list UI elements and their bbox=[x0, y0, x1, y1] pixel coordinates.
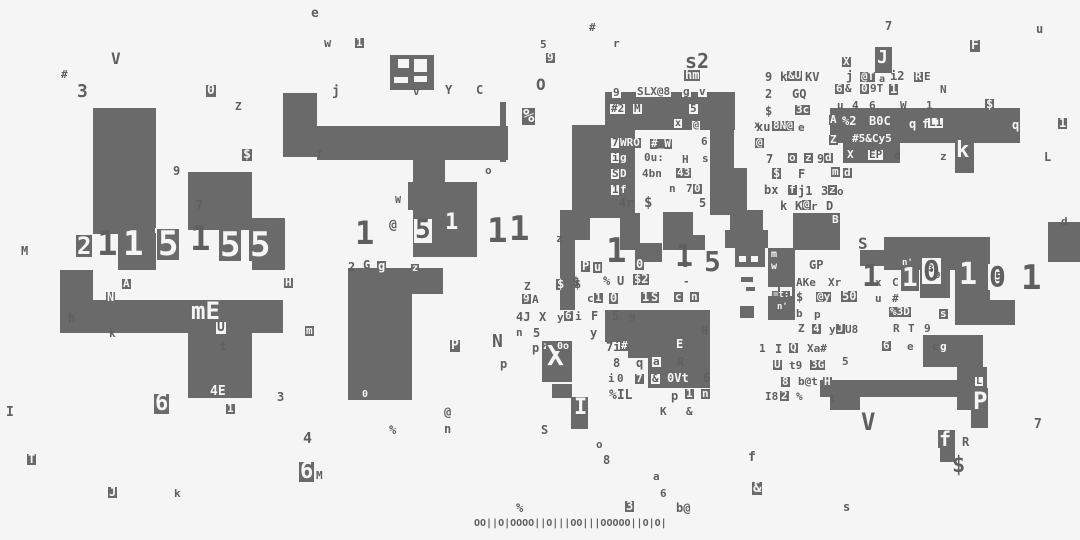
glyph: s bbox=[701, 154, 710, 164]
glyph: GQ bbox=[791, 89, 807, 100]
glyph: #_W bbox=[650, 139, 672, 149]
glyph: f bbox=[938, 430, 952, 448]
glyph: 1 bbox=[685, 389, 694, 399]
glyph: 0o bbox=[556, 342, 570, 351]
glyph: I8 bbox=[764, 392, 779, 402]
glyph: 9 bbox=[172, 166, 181, 177]
glyph: 7 bbox=[1033, 419, 1043, 431]
block bbox=[740, 306, 754, 318]
glyph: R bbox=[961, 437, 970, 448]
glyph: #5&Cy5 bbox=[851, 134, 893, 144]
glyph: 1 bbox=[641, 292, 650, 303]
glyph: j1 bbox=[797, 186, 813, 197]
glyph: R bbox=[892, 324, 901, 334]
glyph: g bbox=[939, 342, 948, 352]
glyph: n bbox=[443, 424, 452, 435]
glyph: Y bbox=[444, 85, 453, 96]
glyph: $ bbox=[764, 106, 773, 117]
glyph: 3 bbox=[76, 84, 89, 101]
glyph: # bbox=[60, 70, 69, 80]
glyph: k bbox=[779, 201, 788, 212]
glyph: P bbox=[972, 390, 988, 412]
glyph: x bbox=[674, 119, 682, 128]
glyph: n bbox=[515, 328, 524, 338]
glyph: Z bbox=[829, 135, 838, 145]
glyph: hm bbox=[684, 70, 700, 81]
glyph: 6 bbox=[882, 341, 891, 351]
block bbox=[1048, 222, 1080, 262]
glyph: 0 bbox=[206, 85, 216, 97]
glyph: 3G bbox=[810, 360, 825, 370]
glyph: G bbox=[362, 260, 371, 271]
glyph: X bbox=[846, 150, 855, 160]
glyph: O bbox=[535, 78, 547, 93]
glyph: j bbox=[845, 71, 854, 82]
pane bbox=[751, 256, 758, 262]
glyph: 2 bbox=[347, 262, 356, 273]
block bbox=[500, 102, 506, 162]
glyph: T bbox=[907, 324, 916, 334]
glyph: b bbox=[795, 309, 804, 319]
glyph: k bbox=[173, 489, 182, 499]
glyph: N bbox=[106, 292, 115, 303]
glyph: T bbox=[27, 454, 36, 465]
glyph: E bbox=[923, 72, 932, 82]
glyph: A bbox=[829, 115, 838, 125]
glyph: u bbox=[593, 262, 602, 273]
glyph: o bbox=[595, 440, 604, 450]
glyph: SLX@8 bbox=[636, 87, 671, 97]
glyph: j bbox=[331, 86, 341, 98]
glyph: 1 bbox=[674, 243, 694, 271]
glyph: F bbox=[590, 311, 599, 322]
glyph: 9T bbox=[869, 84, 884, 94]
glyph: 1 bbox=[1020, 263, 1042, 294]
glyph: 6 bbox=[564, 311, 573, 321]
glyph: # bbox=[891, 294, 900, 304]
glyph: #2 bbox=[610, 104, 625, 114]
block bbox=[60, 300, 283, 333]
glyph: n bbox=[690, 292, 699, 302]
glyph: $ bbox=[772, 168, 781, 179]
glyph: @y bbox=[816, 292, 831, 302]
glyph: M bbox=[20, 246, 29, 257]
glyph: A bbox=[122, 279, 131, 289]
glyph: 5 bbox=[157, 229, 179, 260]
glyph: p bbox=[499, 359, 508, 370]
glyph: L bbox=[1043, 152, 1052, 163]
glyph: 4bn bbox=[641, 169, 663, 179]
glyph: 6 bbox=[700, 137, 709, 147]
glyph: 8 bbox=[612, 358, 621, 369]
glyph: 6 bbox=[659, 489, 668, 499]
glyph: f bbox=[619, 185, 628, 195]
glyph: u bbox=[874, 294, 883, 304]
glyph: 1 bbox=[355, 38, 364, 48]
glyph: 5 bbox=[414, 219, 432, 243]
glyph: 9 bbox=[934, 272, 941, 280]
glyph: 9 bbox=[764, 72, 773, 83]
glyph: 1 bbox=[444, 213, 459, 233]
glyph: S bbox=[857, 237, 869, 252]
block bbox=[820, 380, 957, 397]
glyph: &U bbox=[787, 71, 802, 81]
mark bbox=[741, 277, 753, 282]
glyph: mE bbox=[190, 300, 221, 322]
glyph: L1 bbox=[928, 118, 943, 128]
glyph: F bbox=[970, 40, 980, 52]
glyph: 9 bbox=[546, 53, 555, 63]
glyph: X bbox=[538, 312, 547, 323]
glyph: A bbox=[531, 295, 540, 305]
glyph: 0u: bbox=[643, 153, 665, 163]
glyph: 5 bbox=[703, 249, 722, 275]
block bbox=[990, 300, 1015, 325]
glyph: @ bbox=[388, 220, 398, 232]
glyph: 2 bbox=[764, 89, 773, 100]
block bbox=[283, 93, 317, 157]
glyph: f bbox=[747, 452, 757, 464]
glyph: P bbox=[581, 261, 590, 272]
pane bbox=[739, 256, 746, 262]
glyph: WRO bbox=[619, 138, 641, 148]
glyph: 6 bbox=[835, 84, 844, 94]
glyph: 50 bbox=[841, 291, 857, 302]
glyph: $ bbox=[242, 149, 252, 161]
block bbox=[552, 384, 572, 398]
glyph: V bbox=[110, 52, 122, 67]
glyph: I bbox=[5, 407, 15, 419]
glyph: 4r bbox=[618, 198, 634, 209]
glyph: J bbox=[108, 487, 117, 498]
glyph: H bbox=[700, 326, 709, 337]
glyph: 1 bbox=[958, 261, 978, 289]
glyph: & bbox=[752, 482, 762, 495]
glyph: w bbox=[770, 262, 778, 271]
glyph: P bbox=[450, 340, 460, 352]
glyph: C bbox=[891, 278, 900, 288]
glyph: p bbox=[531, 343, 540, 354]
pane bbox=[414, 59, 427, 72]
glyph: $ bbox=[573, 279, 582, 290]
glyph: 0 bbox=[860, 84, 869, 94]
glyph: # bbox=[588, 23, 597, 33]
glyph: W bbox=[899, 101, 908, 111]
glyph: f bbox=[788, 185, 797, 195]
glyph: p bbox=[670, 391, 679, 402]
glyph: AKe bbox=[795, 278, 817, 288]
glyph: 2 bbox=[76, 235, 92, 257]
glyph: a bbox=[652, 472, 661, 482]
glyph: n bbox=[668, 184, 677, 194]
glyph: b@ bbox=[675, 503, 691, 514]
glyph: 3c bbox=[795, 105, 810, 115]
glyph: & bbox=[844, 84, 853, 94]
glyph: 5 bbox=[532, 328, 541, 339]
glyph: g bbox=[619, 153, 628, 163]
glyph: M bbox=[315, 471, 324, 481]
pane bbox=[394, 77, 408, 83]
glyph: H bbox=[823, 377, 832, 387]
glyph: i bbox=[574, 312, 583, 322]
glyph: 9 bbox=[612, 88, 621, 98]
glyph: u bbox=[836, 101, 845, 111]
glyph: b@t bbox=[797, 377, 819, 387]
glyph: 2 bbox=[780, 391, 789, 401]
glyph: 5 bbox=[689, 104, 698, 114]
glyph: 6 bbox=[154, 394, 169, 414]
glyph: o bbox=[836, 187, 845, 197]
glyph: GP bbox=[808, 260, 824, 271]
glyph: k bbox=[108, 329, 117, 339]
glyph: % bbox=[515, 503, 524, 514]
glyph: 4 bbox=[812, 324, 821, 334]
glitch-canvas: ew1#3V0Z$97TMjvYCo59O%#r7uFXJj@Tai2RE6&0… bbox=[0, 0, 1080, 540]
glyph: 7i bbox=[605, 342, 621, 353]
glyph: I bbox=[573, 398, 588, 418]
glyph: B0C bbox=[868, 116, 892, 127]
glyph: c bbox=[674, 292, 683, 302]
glyph: 9 bbox=[522, 294, 531, 304]
glyph: w bbox=[323, 38, 332, 49]
glyph: R bbox=[676, 357, 685, 368]
glyph: @ bbox=[755, 138, 764, 148]
glyph: U bbox=[773, 360, 782, 370]
glyph: E bbox=[675, 339, 684, 350]
glyph: $ bbox=[985, 99, 994, 110]
glyph: 5 bbox=[841, 357, 850, 367]
block bbox=[560, 210, 590, 240]
glyph: C bbox=[475, 85, 484, 96]
glyph: xu bbox=[755, 122, 771, 133]
glyph: 3 bbox=[625, 501, 634, 512]
glyph: 1 bbox=[1058, 118, 1067, 129]
glyph: =t: bbox=[772, 291, 790, 299]
glyph: 0 bbox=[616, 374, 625, 384]
glyph: d bbox=[893, 151, 902, 161]
glyph: q bbox=[635, 358, 644, 369]
glyph: 8 bbox=[602, 455, 611, 466]
block bbox=[408, 182, 477, 210]
glyph: v bbox=[698, 87, 707, 97]
glyph: %2 bbox=[841, 116, 857, 127]
glyph: 0Vt bbox=[666, 373, 690, 384]
glyph: s bbox=[842, 502, 851, 513]
glyph: v bbox=[412, 87, 421, 97]
glyph: e bbox=[797, 123, 806, 133]
glyph: p bbox=[813, 310, 822, 320]
mark bbox=[746, 287, 755, 291]
glyph: 0 bbox=[635, 259, 644, 270]
glyph: $ bbox=[951, 456, 966, 476]
glyph: 5 bbox=[994, 272, 1003, 283]
glyph: M bbox=[633, 104, 642, 114]
glyph: $ bbox=[556, 279, 565, 290]
glyph: n bbox=[701, 389, 710, 399]
glyph: K bbox=[659, 407, 668, 417]
glyph: z bbox=[411, 264, 419, 273]
glyph: # bbox=[620, 341, 629, 351]
glyph: 6 bbox=[868, 101, 877, 111]
glyph: 5 bbox=[698, 198, 707, 209]
glyph: 1 bbox=[901, 267, 919, 291]
glyph: 1 bbox=[508, 214, 530, 245]
glyph: 5 bbox=[219, 230, 241, 261]
glyph: L bbox=[975, 377, 983, 386]
glyph: 0 bbox=[361, 390, 369, 399]
glyph: N bbox=[939, 85, 948, 95]
glyph: 43 bbox=[676, 168, 691, 178]
glyph: 7 bbox=[765, 154, 774, 165]
glyph: 1 bbox=[486, 216, 508, 247]
glyph: W bbox=[394, 196, 402, 205]
glyph: D bbox=[619, 169, 628, 179]
glyph: t bbox=[828, 394, 837, 404]
glyph: Z bbox=[797, 324, 806, 334]
block bbox=[413, 160, 445, 184]
glyph: @ bbox=[692, 121, 700, 130]
glyph: %IL bbox=[608, 390, 633, 402]
glyph: Xr bbox=[827, 278, 842, 288]
block bbox=[93, 108, 156, 228]
glyph: I bbox=[774, 344, 783, 355]
glyph: S bbox=[650, 292, 659, 303]
glyph: KV bbox=[804, 72, 820, 83]
glyph: %3D bbox=[889, 307, 911, 317]
glyph: D bbox=[825, 201, 834, 212]
glyph: 1 bbox=[889, 84, 898, 95]
glyph: & bbox=[651, 374, 660, 384]
glyph: m bbox=[305, 326, 314, 336]
glyph: d bbox=[1060, 217, 1069, 227]
glyph: % bbox=[522, 108, 535, 125]
glyph: q bbox=[1011, 120, 1020, 131]
glyph: 7 bbox=[635, 374, 644, 384]
glyph: 1 bbox=[122, 229, 144, 260]
glyph: - bbox=[682, 277, 691, 287]
glyph: 1 bbox=[925, 101, 934, 111]
glyph: F bbox=[797, 169, 806, 180]
block bbox=[317, 126, 508, 160]
glyph: g bbox=[682, 87, 691, 97]
glyph: 1 bbox=[861, 263, 881, 291]
glyph: J bbox=[876, 50, 889, 67]
glyph: z bbox=[555, 234, 564, 244]
glyph: B bbox=[831, 215, 840, 225]
glyph: s bbox=[939, 309, 948, 319]
glyph: & bbox=[685, 407, 694, 417]
glyph: i2 bbox=[889, 71, 905, 82]
glyph: u bbox=[1035, 24, 1044, 35]
glyph: 8N@ bbox=[772, 121, 794, 131]
glyph: m bbox=[831, 167, 840, 177]
glyph: 5 bbox=[539, 40, 548, 50]
glyph: 7 bbox=[884, 21, 893, 32]
glyph: $ bbox=[795, 292, 804, 303]
glyph: bx bbox=[763, 185, 779, 196]
glyph: 3 bbox=[276, 392, 285, 403]
glyph: $2 bbox=[633, 274, 649, 285]
block bbox=[390, 55, 434, 90]
glyph: e bbox=[310, 8, 320, 20]
glyph: U bbox=[616, 276, 625, 287]
glyph: U bbox=[216, 322, 226, 334]
glyph: 1 bbox=[594, 293, 603, 303]
glyph: U8 bbox=[844, 325, 859, 335]
glyph: 1 bbox=[96, 229, 118, 260]
glyph: t9 bbox=[788, 361, 803, 371]
glyph: g bbox=[377, 261, 386, 272]
glyph: o bbox=[788, 153, 797, 163]
glyph: n' bbox=[776, 303, 789, 311]
glyph: d bbox=[843, 168, 852, 178]
glyph: EP bbox=[868, 150, 883, 160]
glyph: 5 bbox=[249, 230, 271, 261]
glyph: 0 bbox=[609, 293, 618, 304]
glyph: H bbox=[681, 155, 690, 165]
glyph: 0 bbox=[693, 184, 702, 194]
glyph: i bbox=[607, 374, 616, 384]
glyph: y bbox=[589, 328, 598, 339]
glyph: z bbox=[804, 153, 813, 163]
glyph: q bbox=[908, 119, 917, 130]
glyph: X bbox=[842, 57, 851, 67]
glyph: $ bbox=[643, 197, 653, 210]
glyph: % bbox=[602, 276, 611, 287]
glyph: % bbox=[795, 392, 804, 402]
glyph: 1 bbox=[758, 344, 767, 354]
glyph: Q bbox=[789, 343, 798, 353]
glyph: k bbox=[955, 141, 970, 161]
glyph: 4 bbox=[851, 101, 860, 111]
glyph: N bbox=[491, 334, 504, 351]
glyph: 9 bbox=[628, 313, 637, 323]
glyph: o bbox=[484, 166, 493, 176]
glyph: 6 bbox=[702, 373, 711, 384]
glyph: r bbox=[612, 39, 621, 49]
glyph: @T bbox=[860, 72, 875, 82]
glyph: Z bbox=[234, 102, 243, 112]
glyph: @ bbox=[443, 407, 452, 418]
glyph: 1 bbox=[354, 219, 375, 248]
glyph: z bbox=[939, 152, 948, 162]
glyph: Xa# bbox=[806, 344, 828, 354]
glyph: 7 bbox=[195, 200, 204, 211]
glyph: V bbox=[860, 411, 876, 433]
glyph: 1 bbox=[605, 236, 627, 267]
glyph: d bbox=[824, 153, 833, 163]
glyph: S bbox=[540, 425, 549, 436]
glyph: 5 bbox=[611, 311, 620, 322]
glyph: m bbox=[770, 250, 778, 259]
glyph: Z bbox=[523, 282, 532, 292]
glyph: 8 bbox=[781, 377, 790, 387]
glyph: 9 bbox=[923, 324, 932, 334]
pane bbox=[414, 76, 427, 82]
glyph: a bbox=[652, 357, 661, 367]
block bbox=[605, 310, 710, 342]
block bbox=[348, 268, 412, 400]
glyph: 4E bbox=[209, 386, 227, 398]
glyph: e bbox=[906, 342, 915, 352]
glyph: OO||O|OOOO||O|||OO|||OOOOO||O|O| bbox=[473, 519, 668, 528]
glyph: r bbox=[810, 202, 819, 212]
glyph: h bbox=[67, 313, 76, 324]
glyph: H bbox=[284, 278, 293, 288]
glyph: % bbox=[388, 425, 397, 436]
pane bbox=[398, 59, 409, 68]
glyph: 4J bbox=[515, 312, 531, 323]
